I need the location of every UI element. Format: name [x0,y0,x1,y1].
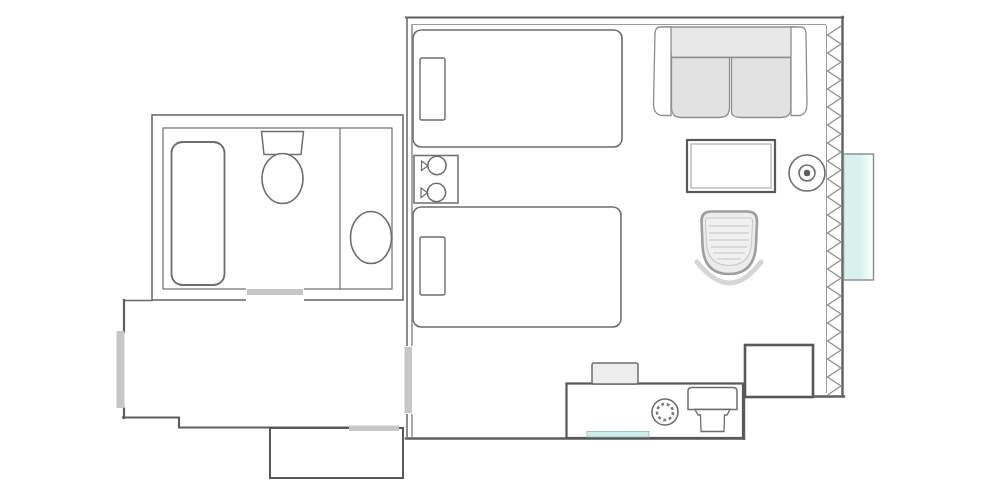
sofa: Loveseat sofa [654,27,808,118]
bed-2-pillow [420,237,445,295]
armchair: Tub armchair [697,212,761,284]
basin-top [688,388,737,410]
bed-1-pillow [420,58,445,120]
bed-2: Bed 2 [413,207,621,327]
table-outer [687,140,775,192]
bathtub [172,142,225,285]
nightstand: Nightstand Two bedside lamps [414,156,458,204]
floor-plan-canvas: Hotel room floor plan Bathroom Toilet En… [0,0,1000,500]
table: Table [687,140,775,192]
room-bathroom: Bathroom Toilet [152,115,403,303]
toilet-tank [262,132,304,155]
sofa-armrest-left [654,27,672,116]
hall-doorway-opening [405,347,413,413]
floor-lamp: Round floor lamp [789,155,825,191]
room-entry-hall: Entry hall [117,300,404,478]
entry-bottom-wall [123,418,351,428]
lamp-1 [428,156,446,174]
lamp-2 [427,183,445,201]
entry-door [117,331,125,408]
window [844,154,874,280]
sofa-backrest [667,27,796,58]
basin-bowl [695,410,730,432]
sofa-seat-right [732,58,792,118]
toilet: Toilet [262,132,304,204]
luggage-bench [745,345,813,397]
closet-box [270,428,403,478]
counter-accent-strip [587,432,649,438]
sofa-seat-left [672,58,730,118]
curtain-zigzag [828,26,842,395]
floor-lamp-center [804,170,810,176]
tray [592,363,638,384]
minibar-counter: Minibar counter [567,363,744,438]
floor-plan-svg: Hotel room floor plan Bathroom Toilet En… [0,0,1000,500]
closet-door-opening [349,426,399,432]
sofa-armrest-right [791,27,807,116]
bed-1: Bed 1 [413,30,622,147]
toilet-bowl [262,154,303,204]
bathroom-door-opening [247,289,303,295]
vanity-sink [351,212,392,264]
